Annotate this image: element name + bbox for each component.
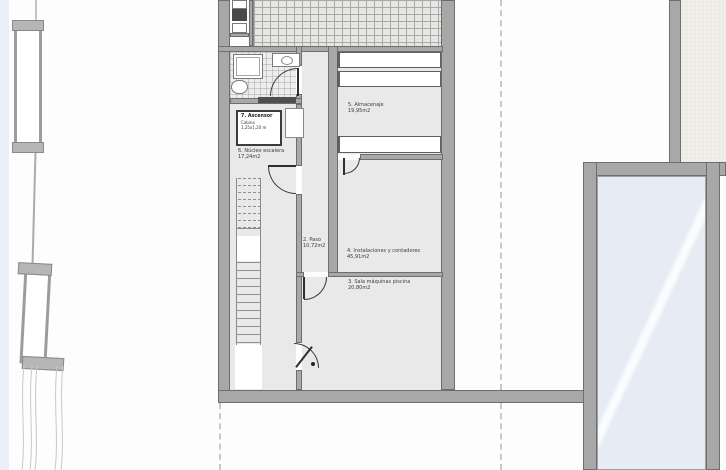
label-machine-room: 3. Sala máquinas piscina 20,80m2 — [348, 279, 410, 292]
wall-right-mid — [441, 0, 455, 390]
elevator-cabin-size: 1,25x1,20 m — [241, 125, 280, 130]
wall-top-right-vertical — [669, 0, 681, 166]
label-storage: 5. Almacenaje 19,95m2 — [348, 102, 384, 115]
stair-treads-upper — [236, 178, 260, 230]
wall-stair-corridor-b — [296, 194, 302, 343]
projection-line-courtyard — [500, 0, 502, 390]
closet-box-bottom — [232, 23, 247, 33]
closet-box-dark — [232, 9, 247, 21]
storage-shelf-1 — [337, 52, 441, 68]
storage-shelf-2 — [337, 71, 441, 87]
site-connector-line — [32, 153, 37, 265]
label-installations-area: 45,91m2 — [347, 254, 420, 260]
label-machine-room-area: 20,80m2 — [348, 285, 410, 291]
site-water-strip — [0, 0, 9, 470]
wall-installations-machine — [328, 272, 443, 277]
bath-threshold-dark — [258, 97, 296, 103]
label-machine-room-name: 3. Sala máquinas piscina — [348, 279, 410, 285]
wall-stair-corridor-c — [296, 370, 302, 390]
washbasin-bowl — [281, 56, 293, 65]
ground-texture-area — [681, 0, 726, 162]
pool-wall-top — [583, 162, 726, 176]
stair-rail-right — [260, 178, 261, 345]
corridor-bottom-door-leaf — [303, 277, 305, 299]
label-stair-core-area: 17,24m2 — [238, 154, 284, 160]
stair-landing — [237, 236, 260, 261]
storage-shelf-3 — [337, 136, 441, 153]
label-storage-area: 19,95m2 — [348, 108, 384, 114]
label-corridor-area: 10,72m2 — [303, 243, 325, 249]
wall-closet-bottom — [230, 33, 249, 37]
wall-left — [218, 0, 230, 403]
stair-treads-lower — [236, 262, 260, 344]
stair-hall-top-door-leaf — [268, 165, 296, 167]
pool-wall-left — [583, 162, 597, 470]
shower-tray — [233, 54, 263, 79]
site-path-lines — [10, 362, 100, 470]
planter-upper-cap-bottom — [12, 142, 44, 153]
planter-lower — [19, 265, 51, 364]
planter-upper-cap-top — [12, 20, 44, 31]
bathroom-door-leaf — [297, 68, 299, 96]
closet-box-top — [232, 0, 247, 9]
wall-bottom — [218, 390, 586, 403]
label-stair-core: 6. Núcleo escalera 17,24m2 — [238, 148, 284, 161]
label-installations: 4. Instalaciones y contadores 45,91m2 — [347, 248, 420, 261]
pool-wall-right — [706, 162, 720, 470]
washbasin-counter — [272, 53, 300, 67]
label-corridor: 2. Paso 10,72m2 — [303, 237, 325, 250]
label-stair-core-name: 6. Núcleo escalera — [238, 148, 284, 154]
toilet — [231, 80, 248, 94]
projection-line-bottom-center — [500, 403, 502, 470]
pool-water — [597, 176, 706, 470]
planter-upper — [14, 22, 42, 152]
elevator-box: 7. Ascensor Cabina 1,25x1,20 m — [236, 110, 282, 146]
projection-line-bottom-left — [219, 403, 221, 470]
ramp-hatch-area — [253, 0, 441, 46]
wall-storage-installations — [360, 154, 443, 160]
stair-hall-bottom-door-hinge-dot — [311, 362, 315, 366]
wall-closet-right — [249, 0, 253, 46]
pool-machine-room-floor — [302, 277, 441, 390]
label-corridor-name: 2. Paso — [303, 237, 321, 243]
installations-door-leaf — [343, 158, 345, 175]
planter-lower-cap-top — [18, 262, 53, 276]
site-line-top — [35, 0, 37, 22]
label-installations-name: 4. Instalaciones y contadores — [347, 248, 420, 254]
stair-rail-left — [236, 178, 237, 345]
stair-base-landing — [235, 344, 262, 389]
duct-shaft — [285, 108, 304, 138]
label-storage-name: 5. Almacenaje — [348, 102, 384, 108]
shower-tray-inner — [236, 57, 260, 76]
floor-plan-canvas: 7. Ascensor Cabina 1,25x1,20 m 5. Almace… — [0, 0, 726, 470]
